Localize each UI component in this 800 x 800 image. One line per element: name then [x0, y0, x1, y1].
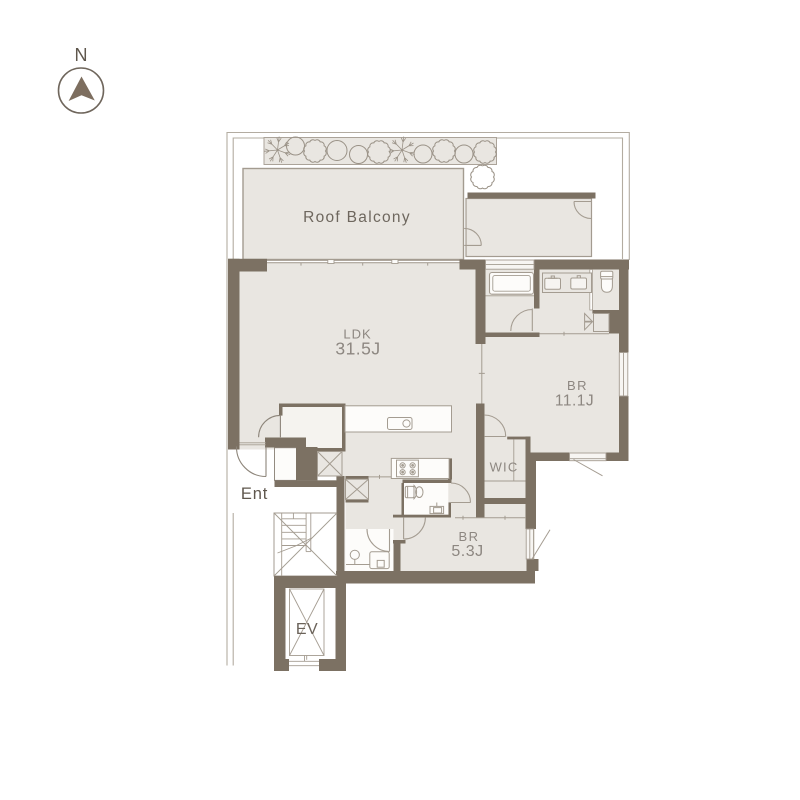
svg-text:N: N — [75, 45, 88, 65]
svg-text:31.5J: 31.5J — [335, 339, 380, 359]
svg-text:BR: BR — [458, 529, 479, 544]
svg-text:BR: BR — [567, 378, 588, 393]
svg-text:5.3J: 5.3J — [451, 543, 483, 560]
svg-text:11.1J: 11.1J — [555, 393, 594, 410]
svg-text:Roof Balcony: Roof Balcony — [303, 209, 411, 226]
svg-text:WIC: WIC — [490, 460, 519, 475]
svg-text:EV: EV — [296, 621, 318, 638]
svg-text:Ent: Ent — [241, 485, 268, 503]
